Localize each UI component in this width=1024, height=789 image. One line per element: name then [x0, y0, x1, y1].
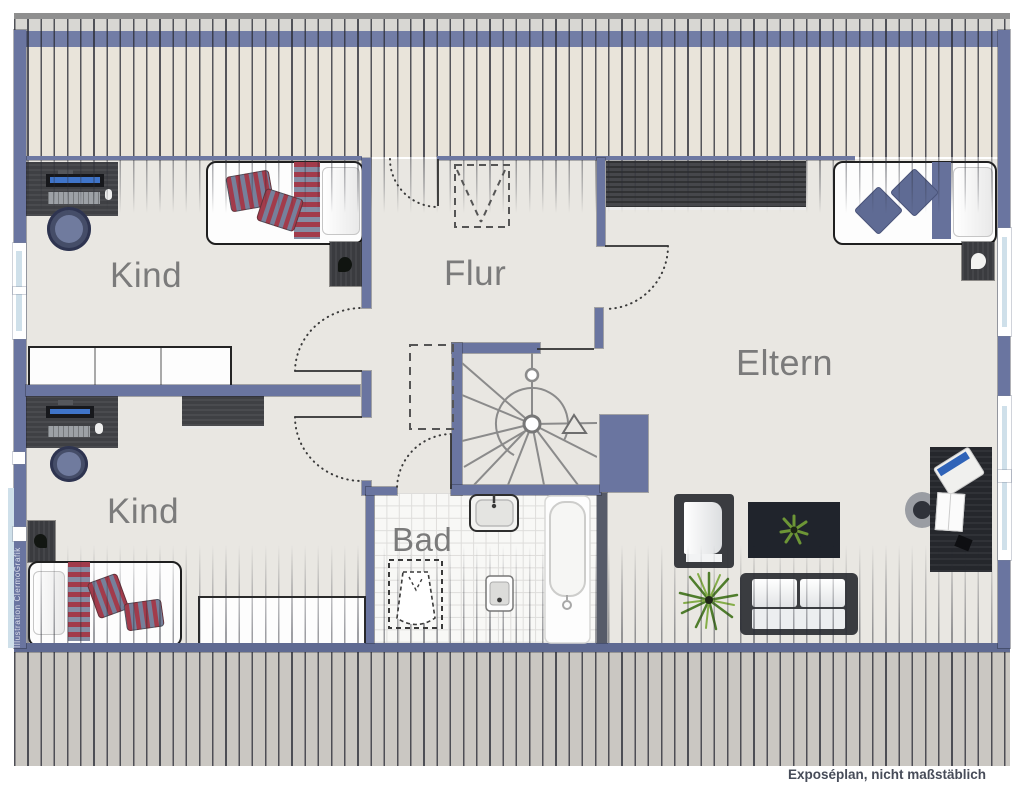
wall-flur-eltern [595, 308, 603, 348]
wall-bad-right [597, 493, 607, 643]
room-label-bad: Bad [392, 521, 452, 559]
wall-flur-eltern [597, 158, 605, 246]
nightstand [962, 242, 994, 280]
window-mullion [998, 470, 1011, 482]
illustrator-watermark: Illustration ClermoGrafik [13, 547, 22, 648]
wall-kind-divider [26, 385, 360, 396]
room-label-flur: Flur [444, 254, 506, 294]
window-small [13, 452, 25, 464]
table-plant-icon [774, 510, 814, 550]
rafter-hatch-lines [14, 652, 1010, 766]
stair-wall-left [452, 343, 462, 495]
room-label-eltern: Eltern [736, 342, 833, 384]
monitor-icon [46, 406, 94, 418]
nightstand [330, 242, 362, 286]
wall-kind-flur [362, 158, 371, 308]
wall-bad-top [366, 487, 397, 495]
desk-with-computer [26, 394, 118, 448]
sloped-ceiling-hatch-bottom [14, 545, 1010, 643]
window-glass [1002, 237, 1007, 327]
stair-wall-top [452, 343, 540, 353]
room-label-kind-bottom: Kind [107, 492, 179, 532]
plan-caption: Exposéplan, nicht maßstäblich [788, 767, 986, 782]
shell-decor-icon [971, 253, 986, 269]
desk-chair [47, 207, 91, 251]
knee-wall-line [605, 156, 855, 160]
knee-wall-line-bottom [14, 643, 1010, 652]
laptop-icon [933, 446, 986, 495]
spiral-staircase [462, 353, 597, 485]
mouse-icon [95, 423, 103, 434]
knee-wall-line [26, 156, 362, 160]
room-label-kind-top: Kind [110, 256, 182, 296]
desk-chair [50, 446, 88, 482]
wall-bad-left [366, 495, 374, 643]
knee-wall-line [437, 156, 605, 160]
decor-plant-icon [338, 257, 352, 272]
papers-icon [935, 492, 966, 532]
stair-wall-bottom [451, 485, 601, 495]
keyboard-icon [48, 426, 90, 437]
roof-hatch-top [14, 19, 1010, 157]
roof-hatch-bottom [14, 652, 1010, 766]
wall-kind-flur [362, 371, 371, 417]
masonry-block [600, 415, 648, 492]
window-mullion [13, 287, 26, 294]
window-mullion [13, 527, 26, 541]
webcam-icon [58, 400, 73, 405]
floorplan-canvas: Kind Flur Eltern Kind Bad Exposéplan, ni… [0, 0, 1024, 789]
sloped-ceiling-hatch-top [14, 157, 1010, 213]
dresser [182, 396, 264, 429]
rafter-hatch-lines [14, 19, 1010, 157]
